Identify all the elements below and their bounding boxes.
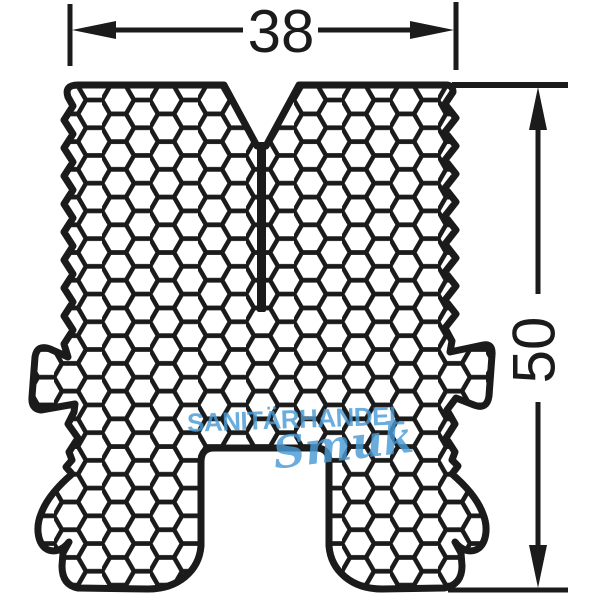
- technical-drawing: 38 50 SANITÄRHANDEL Smuk: [0, 0, 600, 600]
- center-slot: [257, 142, 266, 312]
- width-dimension-value: 38: [248, 0, 315, 65]
- drawing-canvas: 38 50 SANITÄRHANDEL Smuk: [0, 0, 600, 600]
- height-dimension-value: 50: [501, 317, 568, 384]
